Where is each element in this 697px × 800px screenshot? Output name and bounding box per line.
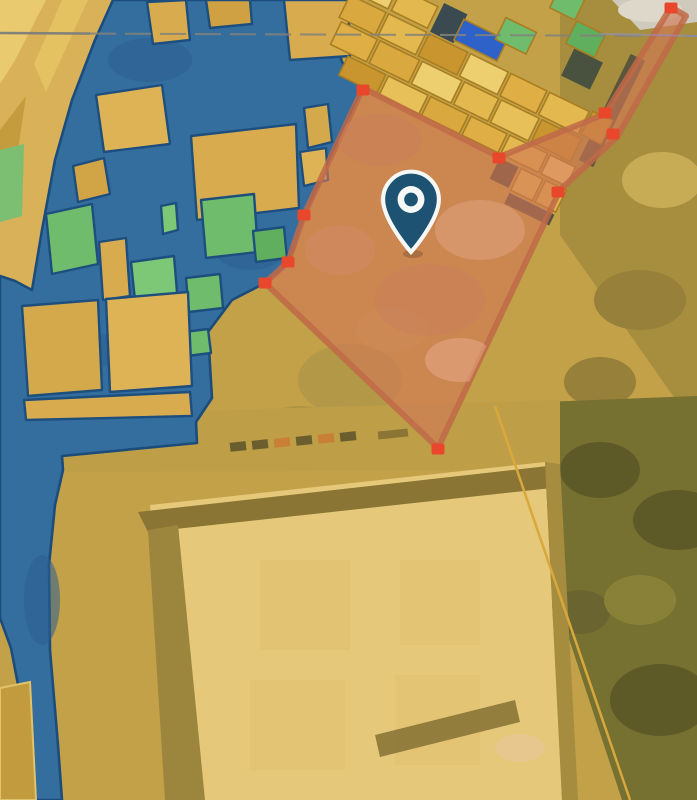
vertex-marker[interactable]	[357, 85, 370, 96]
parcel-bottom-left	[0, 682, 36, 800]
vertex-marker[interactable]	[432, 444, 445, 455]
vertex-marker[interactable]	[599, 108, 612, 119]
vertex-marker[interactable]	[607, 129, 620, 140]
vertex-marker[interactable]	[493, 153, 506, 164]
vertex-marker[interactable]	[665, 3, 678, 14]
vertex-marker[interactable]	[259, 278, 272, 289]
vertex-marker[interactable]	[298, 210, 311, 221]
pin-center-dot	[404, 193, 418, 207]
vertex-marker[interactable]	[552, 187, 565, 198]
vertex-marker[interactable]	[282, 257, 295, 268]
field-green-patch	[0, 144, 24, 222]
map-canvas[interactable]	[0, 0, 697, 800]
